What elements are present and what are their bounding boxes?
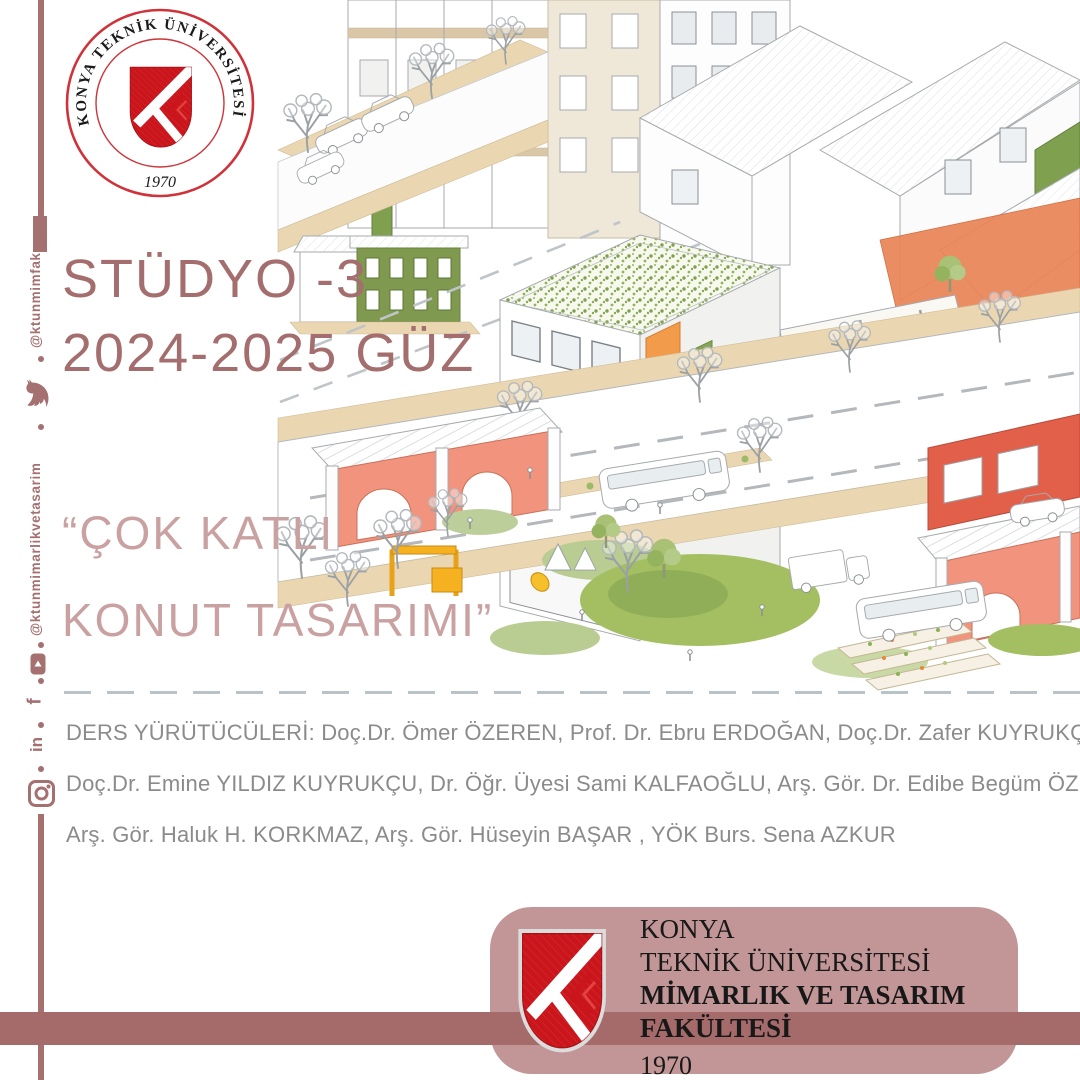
faculty-year: 1970 <box>640 1049 966 1080</box>
instagram-icon <box>28 780 55 812</box>
instructors-line-1: DERS YÜRÜTÜCÜLERİ: Doç.Dr. Ömer ÖZEREN, … <box>66 716 1036 750</box>
faculty-line-3: MİMARLIK VE TASARIM <box>640 979 966 1012</box>
studio-title: STÜDYO -3 <box>62 248 368 310</box>
instructors-line-3: Arş. Gör. Haluk H. KORKMAZ, Arş. Gör. Hü… <box>66 818 1036 852</box>
poster: KONYA TEKNİK ÜNİVERSİTESİ 1970 @ktunmimf… <box>0 0 1080 1080</box>
separator-dot <box>38 722 44 728</box>
linkedin-icon: in <box>28 737 45 752</box>
separator-dot <box>38 424 44 430</box>
faculty-line-1: KONYA <box>640 913 966 946</box>
quote-line-2: KONUT TASARIMI” <box>62 593 493 647</box>
youtube-icon <box>31 654 51 675</box>
social-handle-mimarlik: @ktunmimarlikvetasarim <box>28 438 43 636</box>
instructors-block: DERS YÜRÜTÜCÜLERİ: Doç.Dr. Ömer ÖZEREN, … <box>66 716 1036 869</box>
faculty-card-text: KONYA TEKNİK ÜNİVERSİTESİ MİMARLIK VE TA… <box>640 913 966 1080</box>
twitter-icon <box>26 379 57 409</box>
seal-year: 1970 <box>144 174 176 191</box>
separator-dot <box>38 642 44 648</box>
strip-bar <box>33 216 47 252</box>
social-handle-mimfak: @ktunmimfak <box>28 256 43 348</box>
separator-dot <box>38 678 44 684</box>
term-title: 2024-2025 GÜZ <box>62 322 475 384</box>
strip-line-top <box>38 0 44 216</box>
separator-dot <box>38 766 44 772</box>
university-seal: KONYA TEKNİK ÜNİVERSİTESİ 1970 <box>62 5 258 206</box>
faculty-shield-icon <box>514 924 612 1069</box>
dashed-divider <box>64 691 1080 694</box>
facebook-icon: f <box>26 698 45 704</box>
faculty-line-4: FAKÜLTESİ <box>640 1012 966 1045</box>
faculty-line-2: TEKNİK ÜNİVERSİTESİ <box>640 946 966 979</box>
quote-line-1: “ÇOK KATLI <box>62 506 334 560</box>
instructors-line-2: Doç.Dr. Emine YILDIZ KUYRUKÇU, Dr. Öğr. … <box>66 767 1036 801</box>
separator-dot <box>38 356 44 362</box>
